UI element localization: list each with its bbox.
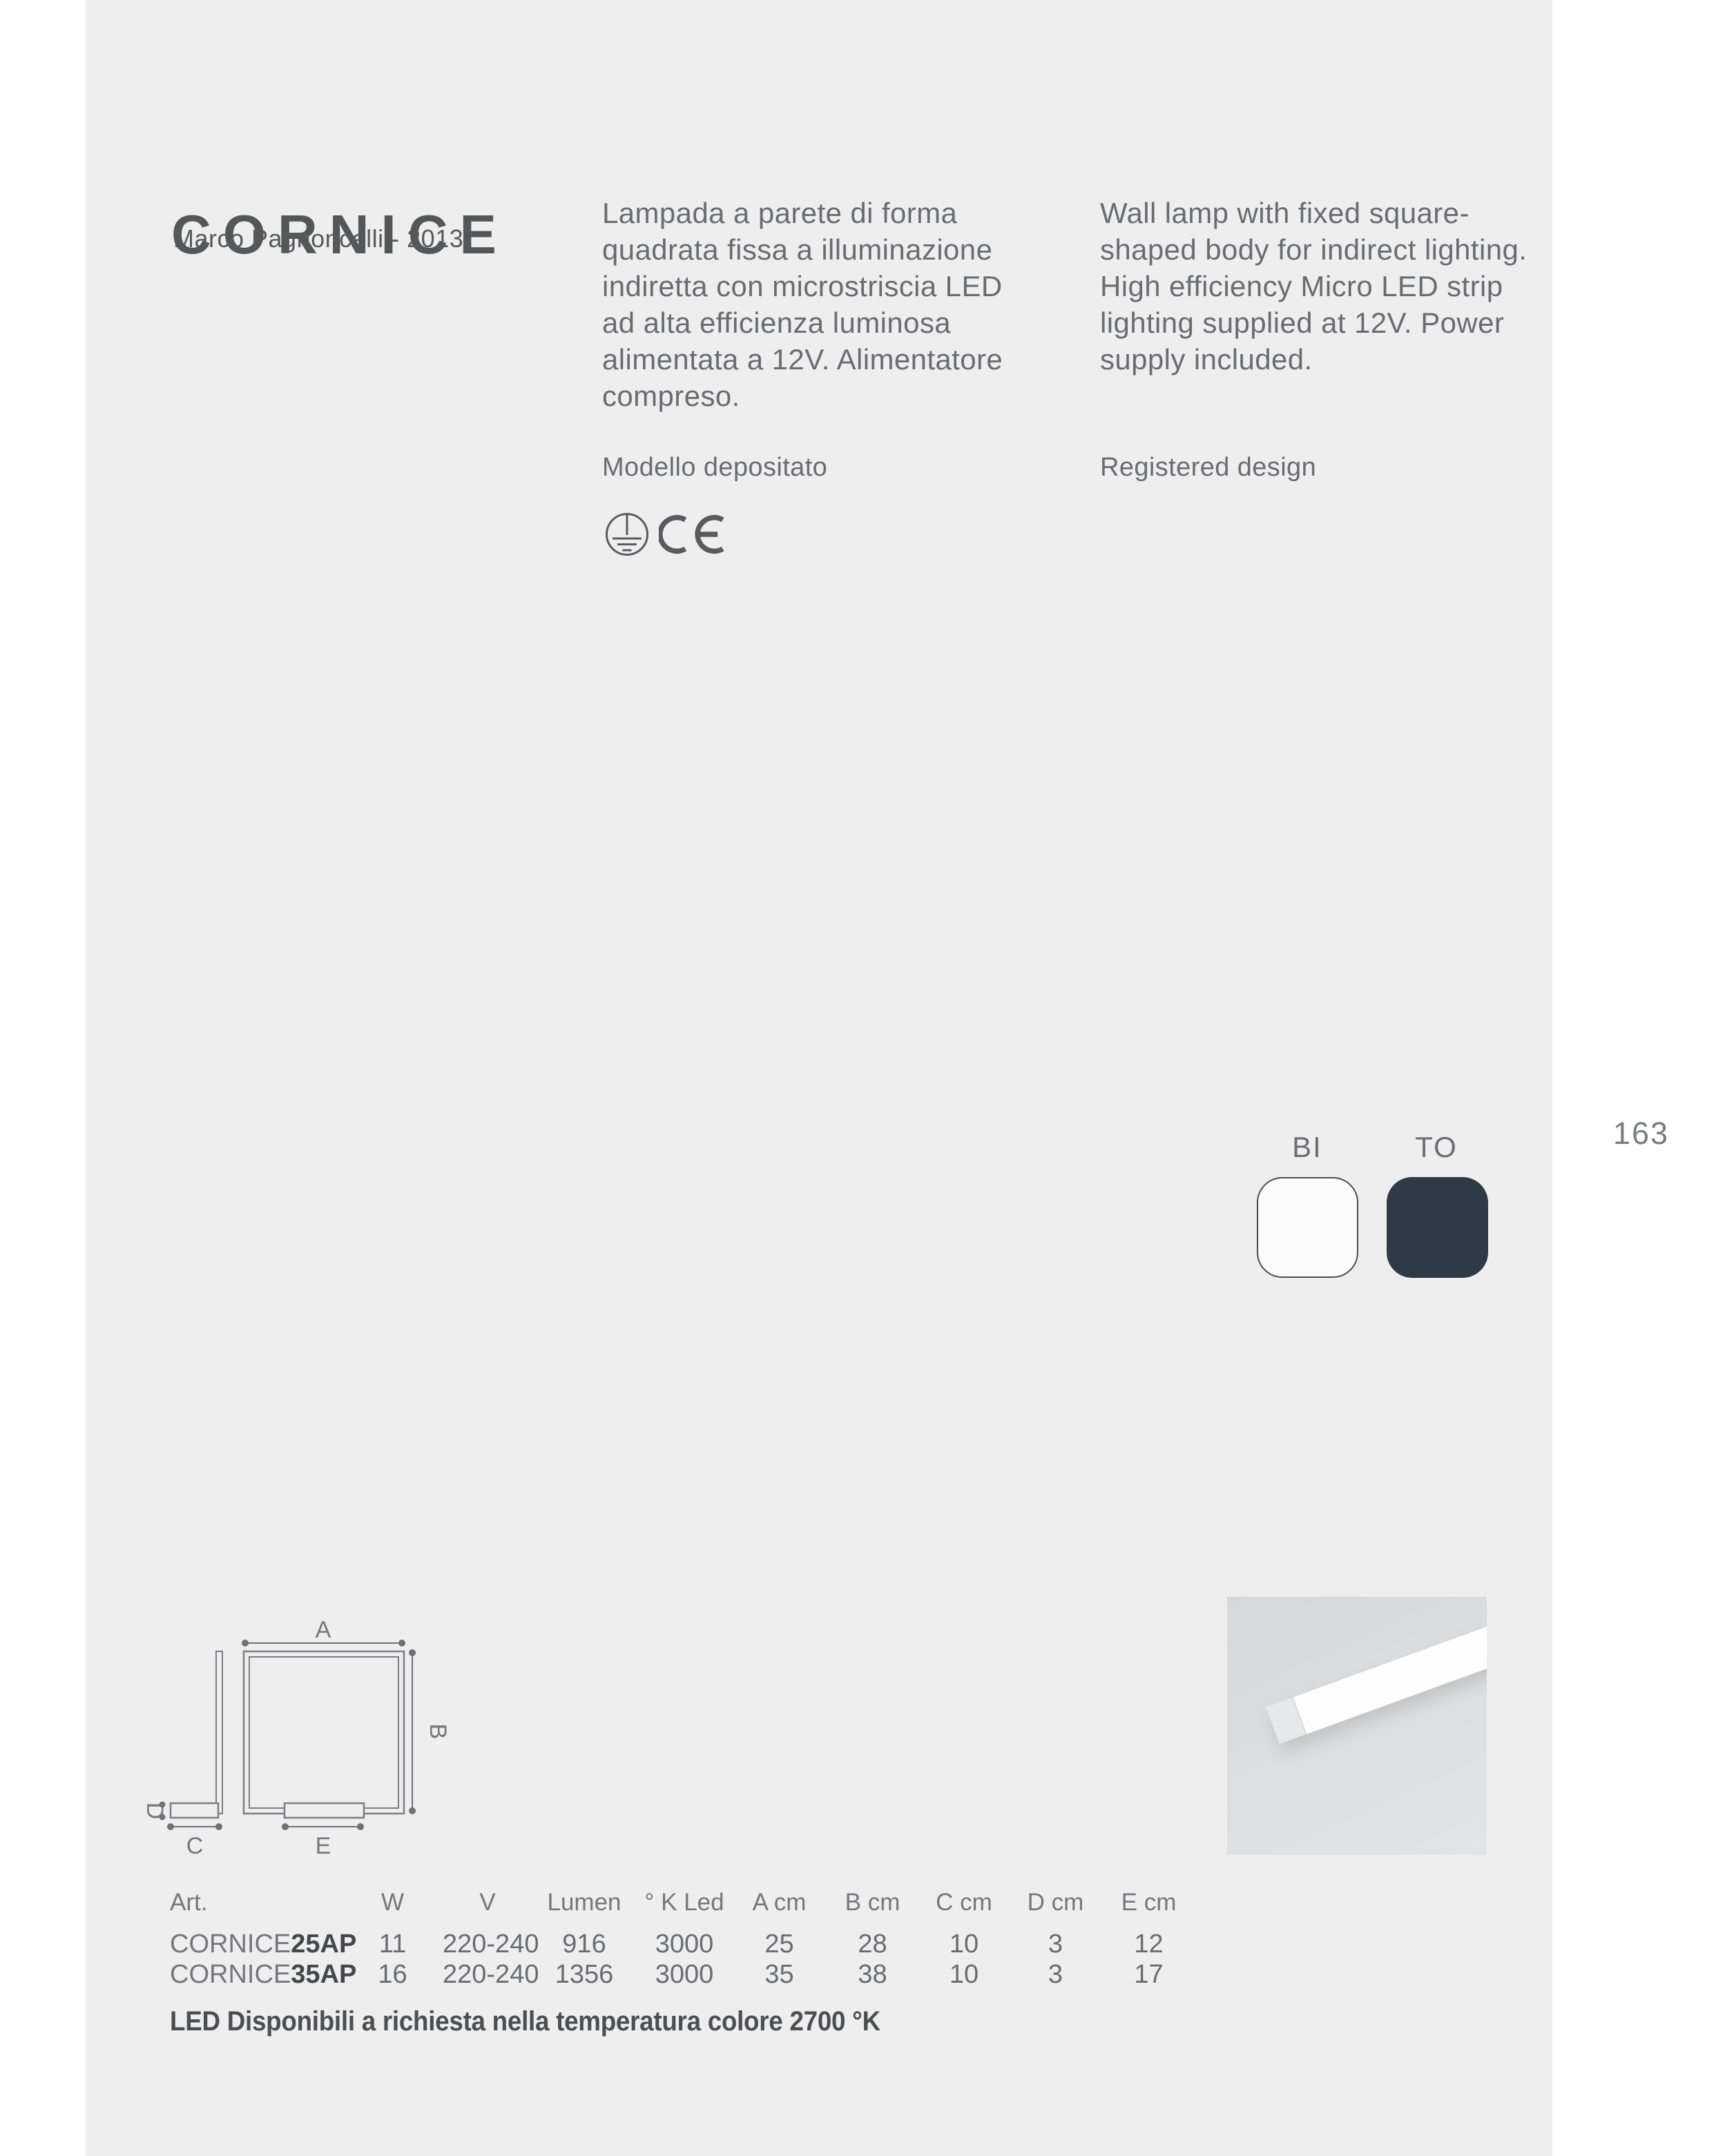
cell-e: 12 <box>1102 1929 1195 1959</box>
col-e: E cm <box>1102 1889 1195 1916</box>
dim-label-e: E <box>316 1833 331 1859</box>
col-b: B cm <box>826 1889 919 1916</box>
finish-label-bi: BI <box>1252 1131 1362 1164</box>
cell-w: 16 <box>343 1959 443 1990</box>
dim-label-b: B <box>425 1724 451 1740</box>
cell-a: 35 <box>733 1959 826 1990</box>
led-footnote: LED Disponibili a richiesta nella temper… <box>170 2006 1117 2037</box>
page-number: 163 <box>1613 1116 1669 1152</box>
product-photo <box>1227 1597 1487 1855</box>
cell-d: 3 <box>1009 1959 1102 1990</box>
cell-kled: 3000 <box>636 1929 733 1959</box>
spec-table-header: Art. W V Lumen ° K Led A cm B cm C cm D … <box>170 1889 1199 1929</box>
cell-d: 3 <box>1009 1929 1102 1959</box>
side-view-plate <box>216 1651 222 1814</box>
col-w: W <box>343 1889 443 1916</box>
table-row: CORNICE35AP 16 220-240 1356 3000 35 38 1… <box>170 1959 1199 1990</box>
spec-table: Art. W V Lumen ° K Led A cm B cm C cm D … <box>170 1889 1199 2037</box>
front-view-outer-frame <box>244 1651 404 1814</box>
cell-e: 17 <box>1102 1959 1195 1990</box>
cell-b: 28 <box>826 1929 919 1959</box>
col-a: A cm <box>733 1889 826 1916</box>
dimension-diagram: A B C D E <box>124 1609 470 1871</box>
front-view-inner-frame <box>249 1657 398 1808</box>
article-code: CORNICE35AP <box>170 1959 343 1990</box>
cell-lumen: 916 <box>532 1929 636 1959</box>
side-view-body <box>171 1803 218 1818</box>
ce-mark-icon <box>659 514 729 559</box>
certification-icons <box>605 512 729 560</box>
registered-design-label-en: Registered design <box>1100 453 1316 483</box>
dim-label-c: C <box>186 1833 204 1859</box>
finish-swatch-bi <box>1257 1177 1358 1278</box>
cell-lumen: 1356 <box>532 1959 636 1990</box>
article-code: CORNICE25AP <box>170 1929 343 1959</box>
finish-swatch-to <box>1387 1177 1488 1278</box>
col-art: Art. <box>170 1889 343 1916</box>
designer-credit: Marco Pagnoncelli - 2013 <box>173 224 463 253</box>
dim-label-a: A <box>316 1617 331 1643</box>
table-row: CORNICE25AP 11 220-240 916 3000 25 28 10… <box>170 1929 1199 1959</box>
col-d: D cm <box>1009 1889 1102 1916</box>
protective-earth-icon <box>605 512 649 560</box>
description-italian: Lampada a parete di forma quadrata fissa… <box>602 195 1030 414</box>
cell-v: 220-240 <box>443 1929 532 1959</box>
col-v: V <box>443 1889 532 1916</box>
catalog-page: CORNICE Marco Pagnoncelli - 2013 Lampada… <box>0 0 1725 2156</box>
cell-a: 25 <box>733 1929 826 1959</box>
cell-c: 10 <box>919 1929 1009 1959</box>
dim-label-d: D <box>142 1803 168 1820</box>
finish-label-to: TO <box>1381 1131 1492 1164</box>
col-kled: ° K Led <box>636 1889 733 1916</box>
cell-c: 10 <box>919 1959 1009 1990</box>
registered-model-label-it: Modello depositato <box>602 453 827 483</box>
cell-kled: 3000 <box>636 1959 733 1990</box>
col-lumen: Lumen <box>532 1889 636 1916</box>
lamp-profile-image <box>1266 1618 1487 1745</box>
col-c: C cm <box>919 1889 1009 1916</box>
cell-b: 38 <box>826 1959 919 1990</box>
description-english: Wall lamp with fixed square- shaped body… <box>1100 195 1528 378</box>
cell-v: 220-240 <box>443 1959 532 1990</box>
cell-w: 11 <box>343 1929 443 1959</box>
front-view-body <box>285 1803 364 1818</box>
